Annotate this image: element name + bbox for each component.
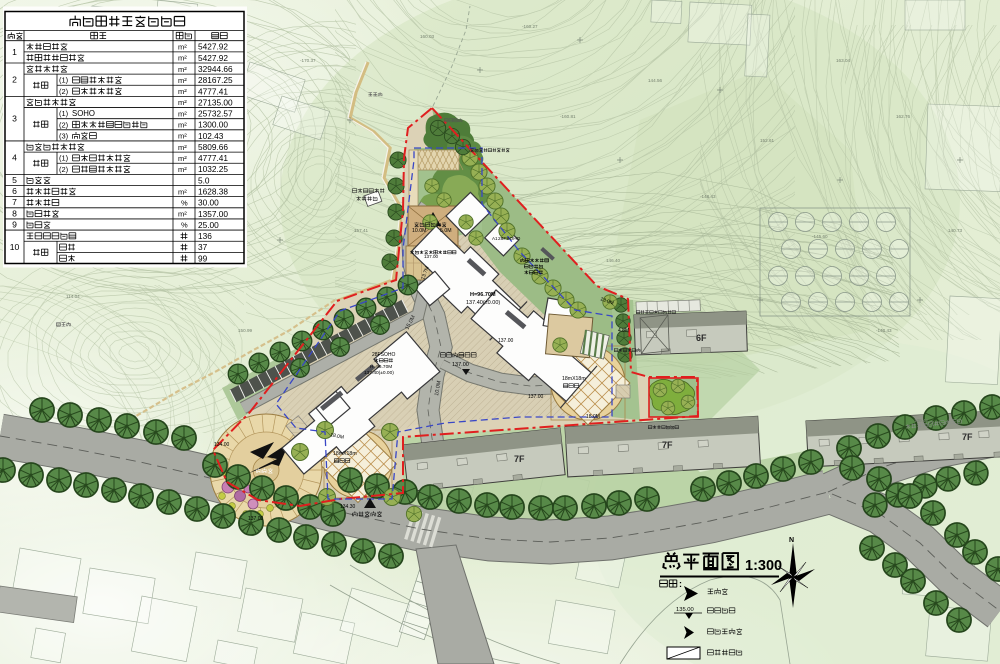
svg-text:6: 6 — [12, 186, 17, 196]
svg-text:-145.60: -145.60 — [812, 234, 828, 239]
svg-text:1:300: 1:300 — [745, 558, 782, 574]
svg-text:102.43: 102.43 — [198, 131, 224, 141]
svg-text:7F: 7F — [662, 440, 673, 450]
svg-text:8: 8 — [12, 208, 17, 218]
svg-text::: : — [679, 579, 682, 589]
svg-text:m²: m² — [178, 210, 187, 219]
svg-text:137.00: 137.00 — [248, 516, 264, 522]
svg-text:m²: m² — [178, 65, 187, 74]
svg-text:-160.81: -160.81 — [560, 114, 576, 119]
svg-text:7F: 7F — [962, 432, 973, 442]
svg-text:5.0M: 5.0M — [440, 228, 452, 234]
svg-text:(1): (1) — [59, 154, 69, 163]
svg-text:(3): (3) — [59, 131, 69, 140]
svg-text:5.0: 5.0 — [198, 175, 210, 185]
svg-text:137.00: 137.00 — [498, 338, 514, 344]
svg-text:m²: m² — [178, 132, 187, 141]
svg-text:18mX18m: 18mX18m — [562, 376, 586, 382]
svg-text:1628.38: 1628.38 — [198, 187, 228, 197]
svg-text:137.00: 137.00 — [452, 362, 469, 368]
svg-text:3: 3 — [12, 114, 17, 124]
svg-text:37: 37 — [198, 242, 208, 252]
svg-text:m²: m² — [178, 98, 187, 107]
svg-text:4: 4 — [12, 153, 17, 163]
svg-text:(2): (2) — [59, 120, 69, 129]
svg-text:25732.57: 25732.57 — [198, 109, 233, 119]
svg-text:10: 10 — [10, 242, 20, 252]
svg-text:1032.25: 1032.25 — [198, 164, 228, 174]
svg-text:m²: m² — [178, 109, 187, 118]
svg-text:4.8M: 4.8M — [618, 328, 629, 334]
svg-text:18.0M: 18.0M — [586, 414, 600, 420]
svg-text:-140.43: -140.43 — [876, 328, 892, 333]
svg-text:144.56: 144.56 — [648, 78, 662, 83]
svg-text:1300.00: 1300.00 — [198, 120, 228, 130]
svg-text:160.03: 160.03 — [420, 34, 434, 39]
svg-text:%: % — [181, 198, 188, 207]
svg-text:10.0M: 10.0M — [412, 228, 426, 234]
svg-text:140.73: 140.73 — [948, 228, 962, 233]
svg-text:1357.00: 1357.00 — [198, 209, 228, 219]
svg-text:146.40: 146.40 — [606, 258, 620, 263]
svg-text:(1): (1) — [59, 109, 69, 118]
svg-text:5: 5 — [12, 175, 17, 185]
svg-text:28167.25: 28167.25 — [198, 75, 233, 85]
svg-text:137.40(±0.00): 137.40(±0.00) — [466, 300, 500, 306]
svg-text:134.00: 134.00 — [214, 442, 230, 448]
svg-text:157.41: 157.41 — [354, 228, 368, 233]
svg-text:SOHO: SOHO — [72, 109, 95, 118]
svg-text:m²: m² — [178, 120, 187, 129]
svg-text:28FSOHO: 28FSOHO — [372, 352, 395, 358]
svg-text:137.00: 137.00 — [528, 394, 544, 400]
svg-text:m²: m² — [178, 187, 187, 196]
svg-text:99: 99 — [198, 253, 208, 263]
svg-text:152.61: 152.61 — [760, 138, 774, 143]
svg-text:1: 1 — [12, 47, 17, 57]
svg-text:163.04: 163.04 — [836, 58, 850, 63]
svg-text:-160.27: -160.27 — [522, 24, 538, 29]
svg-text:%: % — [181, 221, 188, 230]
svg-text:7: 7 — [12, 197, 17, 207]
svg-text:m²: m² — [178, 87, 187, 96]
svg-text:9: 9 — [12, 220, 17, 230]
svg-text:134.30: 134.30 — [340, 504, 356, 510]
svg-text:4777.41: 4777.41 — [198, 86, 228, 96]
svg-text:H=96.70M: H=96.70M — [370, 364, 392, 370]
svg-text:32944.66: 32944.66 — [198, 64, 233, 74]
svg-text:114.04: 114.04 — [66, 294, 80, 299]
svg-text:28FSOHO: 28FSOHO — [498, 236, 521, 242]
svg-text:135.00: 135.00 — [676, 607, 694, 613]
svg-text:-148.43: -148.43 — [700, 194, 716, 199]
svg-text:m²: m² — [178, 43, 187, 52]
svg-text:139.42: 139.42 — [914, 418, 928, 423]
svg-text:2: 2 — [12, 75, 17, 85]
svg-text:-170.37: -170.37 — [300, 58, 316, 63]
svg-text:137.40(±0.00): 137.40(±0.00) — [364, 370, 394, 376]
svg-text:5427.92: 5427.92 — [198, 42, 228, 52]
svg-text:m²: m² — [178, 54, 187, 63]
svg-text:m²: m² — [178, 154, 187, 163]
svg-text:7F: 7F — [514, 454, 525, 464]
svg-text:(2): (2) — [59, 87, 69, 96]
svg-text:N: N — [789, 537, 794, 544]
svg-text:m²: m² — [178, 165, 187, 174]
svg-text:6F: 6F — [696, 333, 707, 343]
svg-text:18mX18m: 18mX18m — [333, 451, 357, 457]
svg-text:5809.66: 5809.66 — [198, 142, 228, 152]
svg-text:30.00: 30.00 — [198, 198, 219, 208]
svg-text:m²: m² — [178, 143, 187, 152]
svg-text:162.76: 162.76 — [896, 114, 910, 119]
svg-text:(1): (1) — [59, 76, 69, 85]
svg-text:H=96.70M: H=96.70M — [470, 292, 496, 298]
svg-text:25.00: 25.00 — [198, 220, 219, 230]
svg-text:150.99: 150.99 — [238, 328, 252, 333]
svg-text:136: 136 — [198, 231, 212, 241]
svg-text:4777.41: 4777.41 — [198, 153, 228, 163]
svg-text:(2): (2) — [59, 165, 69, 174]
svg-text:137.00: 137.00 — [424, 254, 438, 259]
svg-text:m²: m² — [178, 76, 187, 85]
svg-text:27135.00: 27135.00 — [198, 97, 233, 107]
svg-text:5427.92: 5427.92 — [198, 53, 228, 63]
